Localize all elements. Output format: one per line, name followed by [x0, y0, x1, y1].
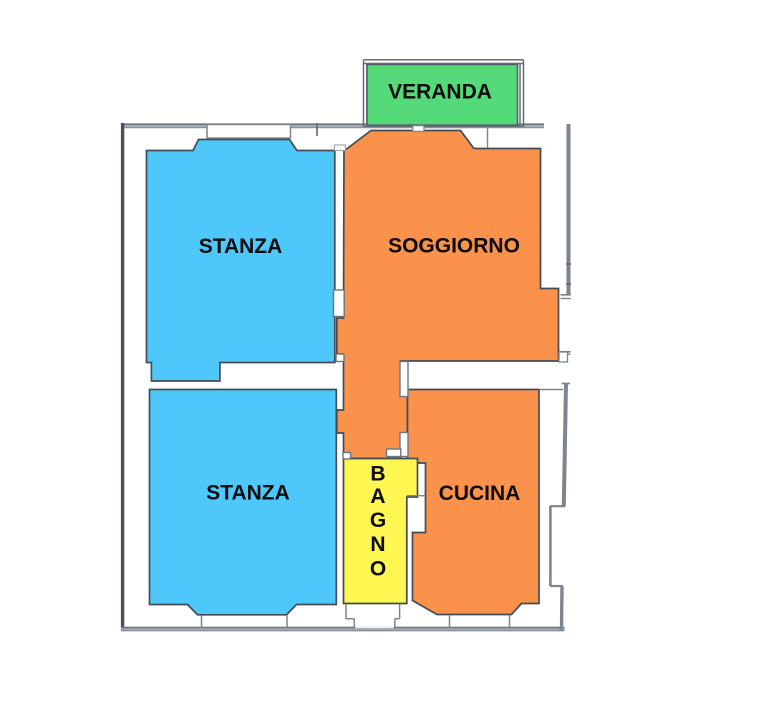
svg-text:G: G [370, 509, 386, 532]
svg-text:O: O [370, 557, 386, 580]
svg-text:SOGGIORNO: SOGGIORNO [388, 235, 520, 258]
svg-text:CUCINA: CUCINA [439, 482, 521, 505]
svg-text:VERANDA: VERANDA [388, 81, 492, 104]
svg-text:B: B [370, 463, 385, 486]
svg-text:STANZA: STANZA [206, 482, 290, 505]
svg-text:N: N [370, 533, 385, 556]
svg-text:A: A [370, 485, 385, 508]
svg-text:STANZA: STANZA [199, 235, 283, 258]
